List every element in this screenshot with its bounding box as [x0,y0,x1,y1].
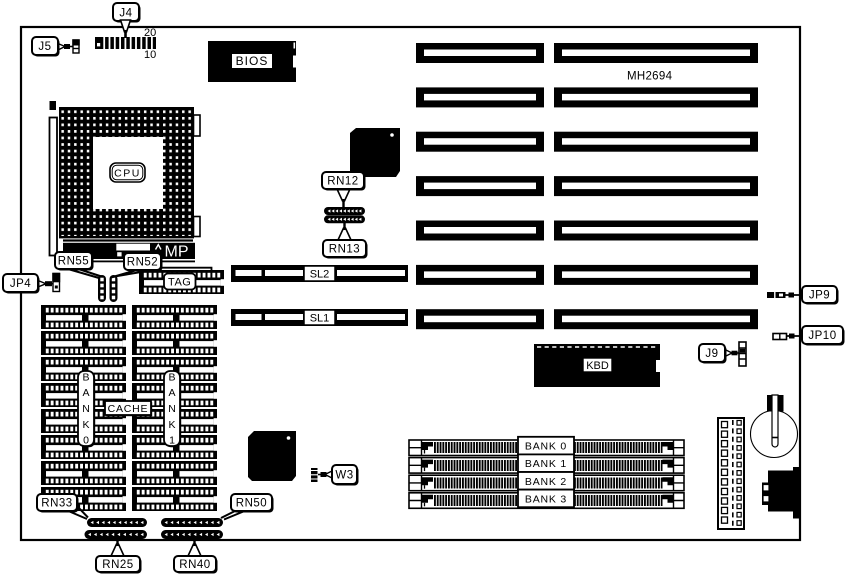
svg-text:BANK 3: BANK 3 [525,493,567,505]
svg-text:W3: W3 [335,470,353,482]
svg-text:B: B [168,372,175,384]
svg-text:K: K [82,419,89,431]
svg-text:A: A [82,387,89,399]
svg-text:BANK 1: BANK 1 [525,458,567,470]
svg-text:CPU: CPU [114,168,141,180]
svg-text:N: N [168,403,176,415]
svg-text:0: 0 [83,435,89,447]
svg-text:RN52: RN52 [127,257,158,269]
svg-text:A: A [168,387,175,399]
svg-text:BANK 2: BANK 2 [525,476,567,488]
svg-text:RN50: RN50 [236,498,267,510]
svg-text:B: B [82,372,89,384]
svg-text:RN40: RN40 [179,559,210,571]
svg-text:MP: MP [165,244,189,261]
svg-text:CACHE: CACHE [108,403,149,415]
svg-text:TAG: TAG [168,277,191,289]
svg-text:JP9: JP9 [809,290,830,302]
svg-text:MH2694: MH2694 [627,71,673,83]
svg-text:J9: J9 [705,348,718,360]
svg-text:N: N [82,403,90,415]
svg-text:RN33: RN33 [41,498,72,510]
svg-text:RN13: RN13 [329,244,360,256]
svg-text:SL1: SL1 [310,313,330,325]
svg-text:BIOS: BIOS [236,54,269,68]
svg-text:BANK 0: BANK 0 [525,441,567,453]
svg-text:KBD: KBD [586,360,609,372]
svg-text:RN55: RN55 [58,256,89,268]
svg-text:RN25: RN25 [102,559,133,571]
svg-text:10: 10 [144,49,156,61]
svg-text:RN12: RN12 [327,176,358,188]
svg-text:JP10: JP10 [808,330,836,342]
svg-text:20: 20 [144,27,156,39]
svg-text:K: K [168,419,175,431]
svg-text:SL2: SL2 [310,269,330,281]
svg-text:J4: J4 [119,8,132,20]
svg-text:1: 1 [169,435,175,447]
svg-text:JP4: JP4 [10,278,31,290]
svg-text:J5: J5 [38,41,51,53]
